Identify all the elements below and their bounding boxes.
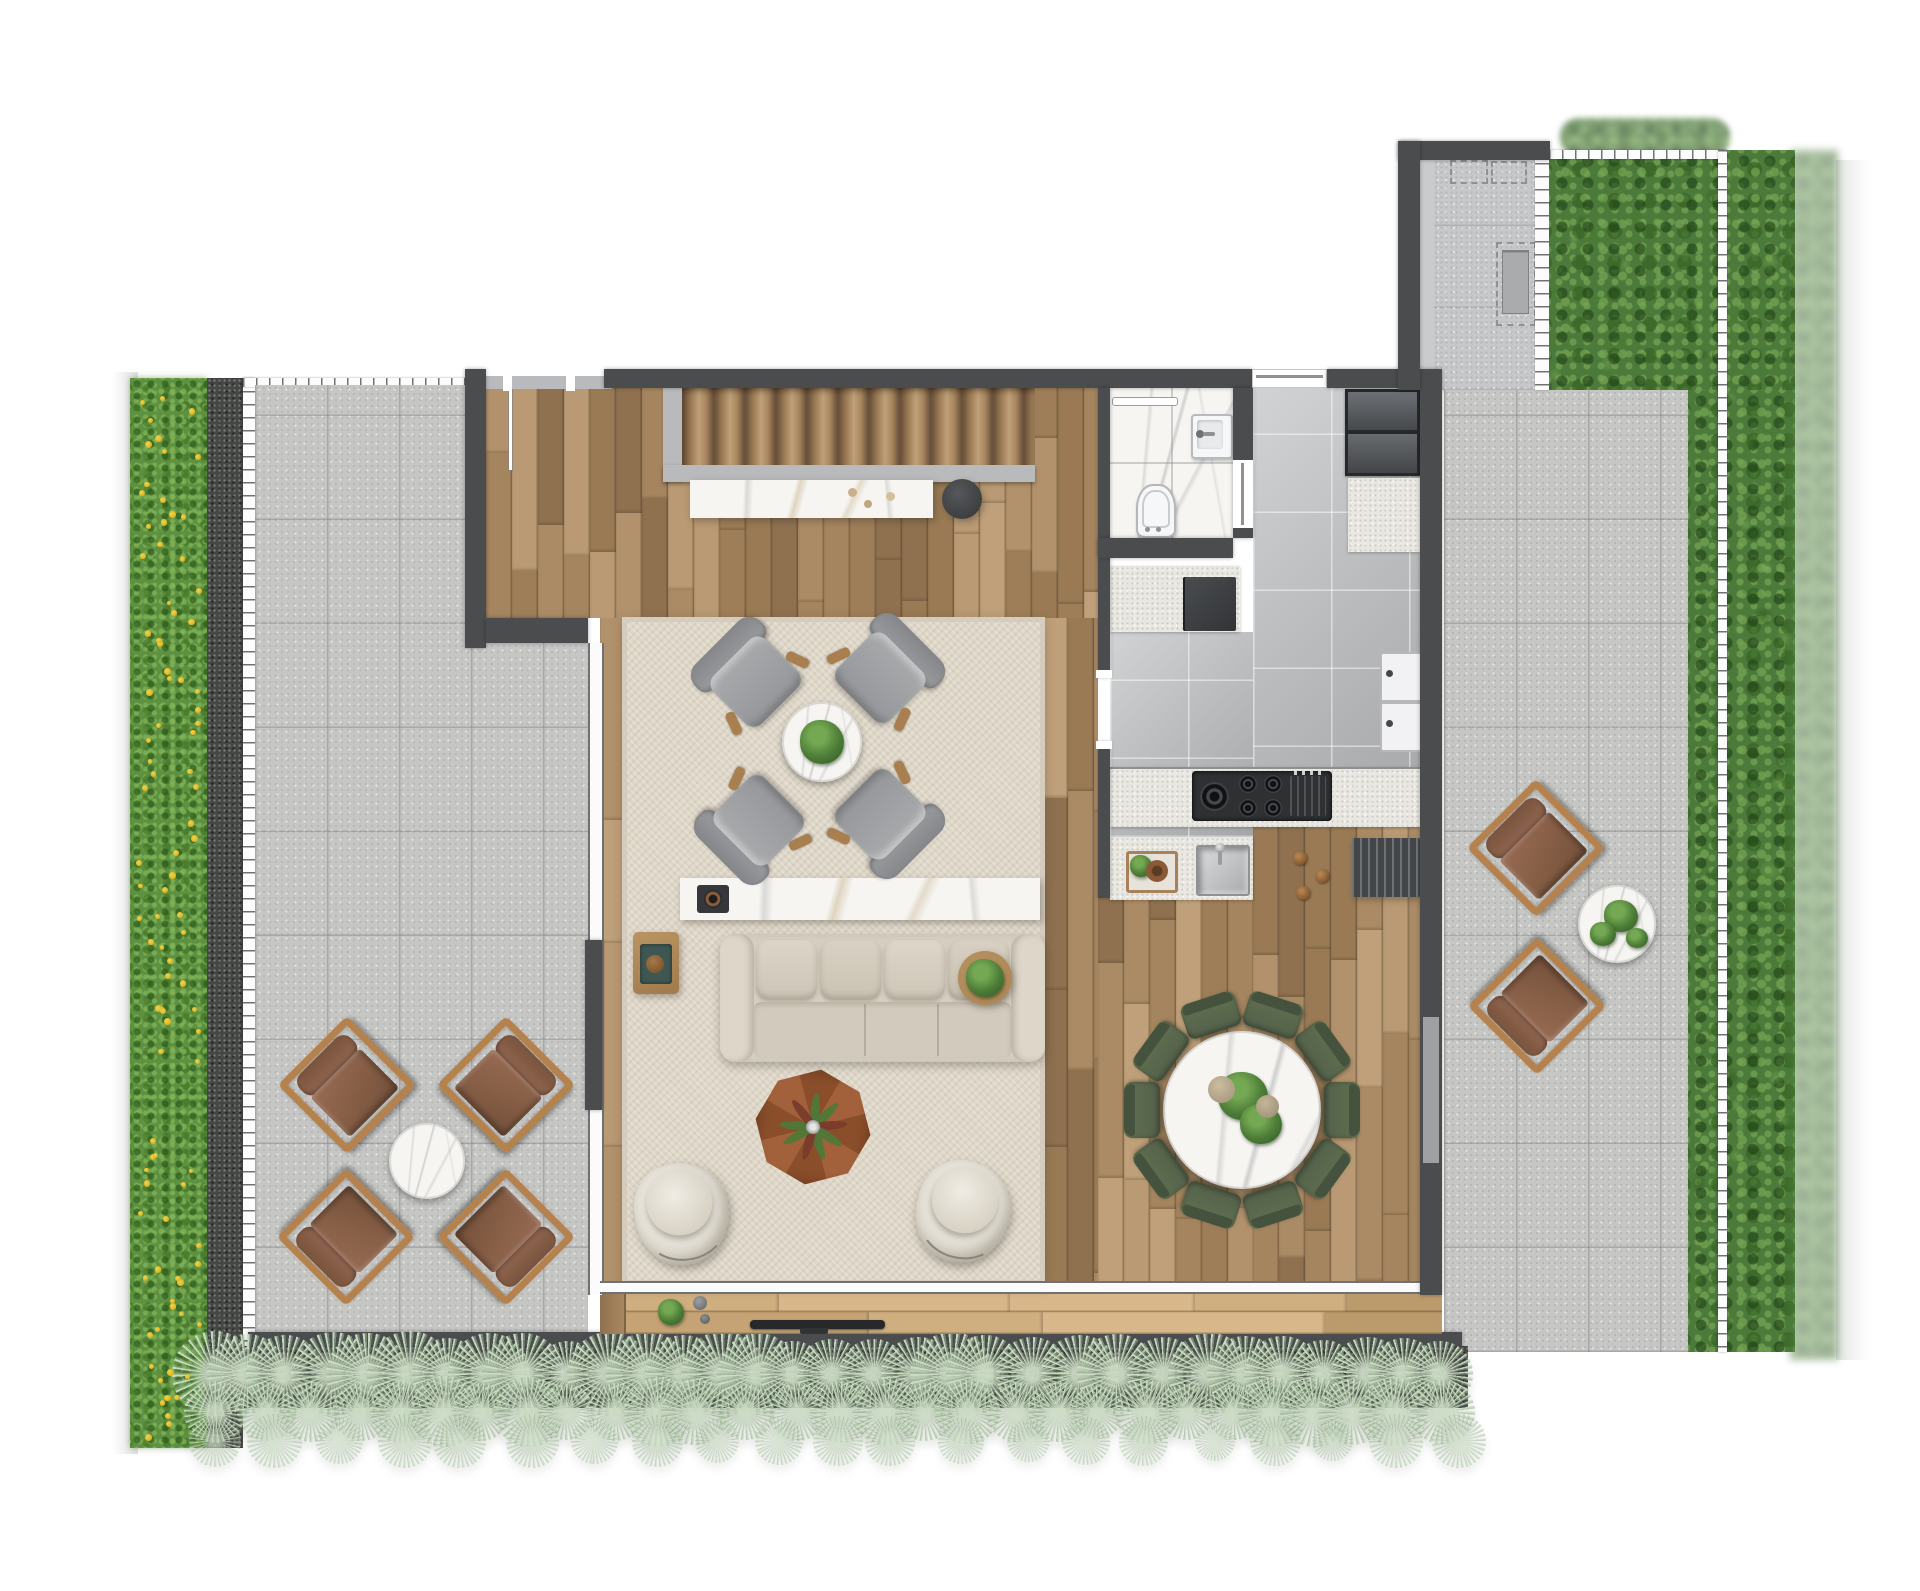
wall-utility-top: [1398, 141, 1550, 160]
hedge-flower: [175, 1276, 181, 1282]
toilet-button-2: [1156, 527, 1161, 532]
dining-vase-2: [1256, 1095, 1279, 1118]
leaf-cluster: [1765, 472, 1788, 496]
hedge-flower: [180, 980, 187, 987]
hedge-flower: [191, 835, 198, 842]
counter-knob-1: [1293, 851, 1307, 865]
hedge-flower: [160, 497, 166, 503]
living-table-plant: [800, 720, 844, 764]
hedge-flower: [188, 619, 194, 625]
deck-plank: [1325, 1312, 1442, 1334]
hedge-flower: [195, 454, 201, 460]
leaf-cluster: [1771, 750, 1792, 770]
gravel-strip-left: [207, 378, 243, 1448]
wood-plank: [798, 602, 824, 618]
leaf-cluster: [1618, 256, 1632, 274]
wood-plank: [746, 514, 772, 618]
hedge-flower: [196, 588, 202, 594]
kitchen-sink: [1196, 845, 1250, 896]
wood-plank: [1006, 552, 1032, 618]
leaf-cluster: [1748, 601, 1778, 632]
grass-tuft: [1119, 1416, 1168, 1465]
hedge-flower: [180, 556, 185, 561]
hedge-flower: [173, 850, 179, 856]
hedge-flower: [164, 668, 170, 674]
burner-2: [1239, 799, 1257, 817]
sofa-cushion-1: [756, 940, 817, 1000]
leaf-cluster: [1764, 1067, 1789, 1088]
glass-wall-south: [600, 1281, 1420, 1294]
burner-1: [1239, 775, 1257, 793]
hedge-flower: [169, 511, 176, 518]
leaf-cluster: [1696, 348, 1710, 362]
utility-threshold: [1420, 160, 1434, 390]
grass-tuft: [632, 1415, 683, 1466]
counter-knob-3: [1296, 886, 1310, 900]
side-table-bowl: [646, 955, 664, 973]
grass-tuft: [1312, 1421, 1352, 1461]
south-deck-edge: [600, 1290, 626, 1334]
wood-plank: [1383, 1215, 1409, 1290]
utility-equipment-2: [1491, 161, 1527, 184]
wall-appliance-1-dot: [1386, 670, 1393, 677]
wood-plank: [1068, 618, 1094, 791]
hedge-flower: [166, 1421, 172, 1427]
leaf-cluster: [1687, 1271, 1709, 1292]
wood-plank: [616, 513, 642, 618]
wood-plank: [1084, 592, 1098, 618]
deck-fire-trough-tab: [800, 1328, 828, 1334]
leaf-cluster: [1724, 1145, 1746, 1166]
console-sideboard: [680, 878, 1040, 920]
wood-plank: [486, 453, 512, 618]
wood-plank: [1098, 963, 1124, 1178]
leaf-cluster: [1548, 286, 1562, 300]
right-table-plant-2: [1590, 922, 1616, 946]
leaf-cluster: [1752, 900, 1773, 922]
hedge-flower: [185, 1374, 190, 1379]
hedge-flower: [171, 610, 176, 615]
toilet-seat: [1142, 490, 1170, 528]
hedge-flower: [144, 1180, 150, 1186]
wood-plank: [1042, 1147, 1068, 1290]
hedge-flower: [151, 771, 156, 776]
wood-plank: [1176, 1219, 1202, 1290]
bathroom-tile-joint-h: [1110, 462, 1233, 464]
wood-plank: [590, 552, 616, 618]
right-edge-shadow: [1836, 160, 1870, 1360]
hedge-flower: [178, 677, 184, 683]
fence-ne-right: [1718, 150, 1727, 1352]
wood-plank: [1253, 825, 1279, 955]
hedge-flower: [162, 449, 167, 454]
wall-bathroom-south: [1098, 538, 1233, 558]
sofa-cushion-3: [884, 940, 945, 1000]
deck-knob-1: [693, 1296, 707, 1310]
grass-tuft: [316, 1418, 363, 1465]
towel-bar: [1112, 397, 1178, 406]
wood-plank: [954, 534, 980, 618]
wood-plank: [902, 601, 928, 618]
staircase: [682, 388, 1035, 465]
hedge-flower: [146, 689, 153, 696]
leaf-cluster: [1732, 621, 1747, 637]
toilet-button-1: [1145, 527, 1150, 532]
hedge-flower: [156, 723, 161, 728]
leaf-cluster: [1739, 434, 1759, 452]
built-in-oven: [1183, 577, 1236, 631]
bar-decor-dot-3: [886, 492, 895, 501]
wood-plank: [538, 525, 564, 618]
sofa-seat-seam-2: [937, 1004, 939, 1056]
deck-plant: [658, 1299, 684, 1325]
window-post-2: [566, 374, 575, 391]
sofa-seat-seam-1: [864, 1004, 866, 1056]
wood-plank: [1357, 930, 1383, 1088]
wall-appliance-2: [1380, 702, 1424, 752]
grass-tuft: [378, 1414, 432, 1468]
hedge-flower: [155, 435, 162, 442]
hedge-flower: [165, 1413, 171, 1419]
wood-plank: [1042, 990, 1068, 1147]
door-cap-1: [1096, 670, 1112, 678]
door-cap-2: [1096, 741, 1112, 749]
bar-stool: [942, 479, 982, 519]
hedge-flower: [170, 1303, 176, 1309]
grass-tuft: [506, 1414, 559, 1467]
counter-knob-2: [1315, 869, 1329, 883]
hedge-flower: [169, 872, 175, 878]
hedge-right-soft-edge: [1790, 150, 1838, 1360]
bar-counter: [690, 480, 933, 518]
hedge-flower: [156, 638, 162, 644]
burner-3: [1264, 775, 1282, 793]
grass-tuft: [695, 1419, 740, 1464]
bar-decor-dot-2: [864, 500, 872, 508]
leaf-cluster: [1737, 515, 1755, 534]
wood-plank: [1124, 1180, 1150, 1290]
wall-west-upper: [465, 369, 486, 648]
fence-ne-top: [1549, 150, 1726, 159]
wood-plank: [1032, 438, 1058, 573]
hedge-flower: [146, 738, 151, 743]
wood-plank: [720, 530, 746, 618]
cooktop-grill: [1290, 776, 1326, 816]
wood-plank: [590, 388, 616, 552]
wood-plank: [1032, 388, 1058, 438]
grass-tuft: [571, 1418, 618, 1465]
leaf-cluster: [1734, 1122, 1746, 1134]
grass-tuft: [1250, 1416, 1301, 1467]
hedge-flower: [149, 1364, 154, 1369]
fridge-door-top: [1348, 392, 1417, 430]
hedge-flower: [144, 1168, 149, 1173]
wood-plank: [1357, 1088, 1383, 1281]
wood-plank: [564, 388, 590, 556]
wood-plank: [1032, 573, 1058, 618]
hedge-flower: [145, 1434, 152, 1441]
leaf-cluster: [1698, 501, 1711, 515]
hedge-flower: [160, 945, 165, 950]
wood-plank: [1383, 1034, 1409, 1215]
leaf-cluster: [1684, 321, 1704, 342]
grass-tuft: [433, 1414, 486, 1467]
burner-4: [1264, 799, 1282, 817]
hedge-flower: [147, 1332, 153, 1338]
leaf-cluster: [1612, 331, 1634, 352]
fern-vase: [806, 1120, 820, 1134]
wall-kitchen-living-b: [1098, 742, 1110, 898]
hedge-flower: [160, 396, 165, 401]
wood-plank: [1202, 1218, 1228, 1290]
hedge-flower: [196, 1029, 201, 1034]
leaf-cluster: [1682, 298, 1701, 313]
dining-chair: [1124, 1082, 1160, 1138]
wood-plank: [616, 388, 642, 513]
right-table-plant-3: [1626, 928, 1648, 948]
hedge-flower: [155, 1327, 160, 1332]
hedge-flower: [189, 408, 195, 414]
hedge-flower: [195, 1261, 201, 1267]
hedge-right: [1688, 390, 1795, 1352]
grass-tuft: [755, 1417, 803, 1465]
burner-large: [1200, 782, 1229, 811]
hedge-flower: [144, 482, 150, 488]
wood-plank: [1068, 1070, 1094, 1290]
door-bathroom-leaf: [1241, 463, 1244, 525]
deck-plank: [869, 1312, 1042, 1334]
utility-equipment-3-unit: [1502, 250, 1529, 314]
leaf-cluster: [1688, 1171, 1709, 1195]
sink-faucet-stem: [1218, 851, 1222, 865]
dining-chair-back: [1349, 1084, 1360, 1136]
leaf-cluster: [1748, 999, 1765, 1016]
garden-ne: [1549, 150, 1795, 390]
window-band-nw: [470, 376, 612, 389]
hedge-flower: [174, 1395, 179, 1400]
deck-plank: [1043, 1312, 1325, 1334]
leaf-cluster: [1604, 215, 1624, 236]
fence-left: [243, 378, 255, 1352]
herb-tray-plate: [1146, 860, 1168, 882]
leaf-cluster: [1568, 234, 1580, 244]
console-burner-ring: [704, 890, 722, 908]
grass-tuft: [865, 1416, 914, 1465]
wall-appliance-2-dot: [1386, 720, 1393, 727]
wood-plank: [512, 388, 538, 571]
basin-spout: [1203, 432, 1215, 436]
leaf-cluster: [1703, 868, 1714, 881]
wood-plank: [1409, 1040, 1420, 1290]
wood-plank: [1084, 388, 1098, 592]
cooktop-knobs: [1294, 771, 1326, 775]
utility-equipment-1: [1450, 160, 1488, 184]
wood-plank: [980, 503, 1006, 618]
fridge-door-bottom: [1348, 434, 1417, 473]
hedge-flower: [160, 1008, 166, 1014]
hedge-flower: [195, 689, 200, 694]
grass-fade: [0, 0, 1320, 70]
leaf-cluster: [1597, 354, 1619, 374]
dining-vase-1: [1208, 1076, 1235, 1103]
wood-plank: [1098, 1178, 1124, 1290]
hedge-flower: [136, 860, 142, 866]
left-terrace-table: [389, 1123, 465, 1199]
slatted-cabinet: [1352, 838, 1420, 897]
hedge-flower: [165, 973, 171, 979]
leaf-cluster: [1661, 281, 1673, 293]
hedge-flower: [167, 1369, 174, 1376]
wood-plank: [642, 499, 668, 618]
hedge-flower: [138, 1211, 143, 1216]
south-deck: [600, 1290, 1442, 1334]
wood-plank: [1042, 798, 1068, 990]
hedge-flower: [190, 730, 195, 735]
wood-plank: [1058, 388, 1084, 604]
wall-kitchen-living-a: [1098, 388, 1110, 677]
leaf-cluster: [1696, 908, 1715, 927]
wall-utility-west: [1398, 141, 1420, 390]
hedge-flower: [181, 514, 187, 520]
deck-knob-2: [700, 1314, 710, 1324]
leaf-cluster: [1754, 855, 1786, 886]
leaf-cluster: [1624, 205, 1649, 231]
hedge-flower: [145, 630, 151, 636]
grass-tuft: [189, 1415, 242, 1468]
sofa-cushion-2: [820, 940, 881, 1000]
counter-east: [1348, 478, 1420, 552]
hedge-flower: [155, 1266, 161, 1272]
grass-tuft: [1007, 1420, 1050, 1463]
wood-plank: [564, 556, 590, 618]
floor-plan-canvas: [0, 0, 1920, 1591]
window-east: [1423, 1017, 1439, 1163]
dining-chair-back: [1124, 1084, 1135, 1136]
hedge-flower: [143, 1275, 149, 1281]
leaf-cluster: [1738, 583, 1751, 597]
wood-plank: [668, 590, 694, 618]
hedge-flower: [163, 1216, 169, 1222]
leaf-cluster: [1747, 1288, 1764, 1306]
hedge-left: [130, 378, 207, 1448]
hedge-flower: [148, 939, 153, 944]
leaf-cluster: [1694, 586, 1710, 603]
sofa-seat: [754, 1002, 1011, 1058]
wall-west-stub: [486, 618, 588, 643]
grass-tuft: [938, 1418, 984, 1464]
hedge-flower: [155, 914, 160, 919]
leaf-cluster: [1769, 771, 1788, 794]
sofa-arm-left: [720, 934, 754, 1062]
door-north: [1252, 369, 1327, 388]
grass-tuft: [247, 1414, 301, 1468]
door-north-leaf: [1256, 375, 1323, 378]
window-post-1: [503, 374, 512, 391]
wood-plank: [538, 388, 564, 525]
leaf-cluster: [1756, 558, 1775, 578]
hedge-flower: [162, 887, 168, 893]
fence-utility: [1535, 150, 1549, 390]
wall-appliance-1: [1380, 652, 1424, 702]
hedge-flower: [164, 1018, 171, 1025]
grass-tuft: [1062, 1417, 1110, 1465]
grass-tuft: [1195, 1421, 1235, 1461]
hedge-flower: [138, 884, 143, 889]
plant-stand-plant: [966, 959, 1004, 997]
sofa-arm-right: [1011, 934, 1045, 1062]
dining-chair: [1324, 1082, 1360, 1138]
leaf-cluster: [1661, 310, 1675, 327]
bar-decor-dot-1: [848, 488, 857, 497]
wood-plank: [512, 571, 538, 618]
hedge-flower: [160, 1400, 166, 1406]
wood-plank: [1042, 618, 1068, 798]
wood-plank: [1068, 791, 1094, 1070]
wood-plank: [1058, 604, 1084, 618]
grass-tuft: [813, 1416, 863, 1466]
grass-tuft: [1432, 1414, 1486, 1468]
grass-tuft: [1369, 1414, 1423, 1468]
wall-pier-west: [585, 940, 602, 1110]
hedge-flower: [148, 418, 153, 423]
leaf-cluster: [1593, 193, 1618, 216]
wood-plank: [1150, 1209, 1176, 1290]
wall-north: [604, 369, 1252, 388]
upper-door-line: [509, 390, 512, 470]
wood-plank: [1305, 825, 1331, 949]
